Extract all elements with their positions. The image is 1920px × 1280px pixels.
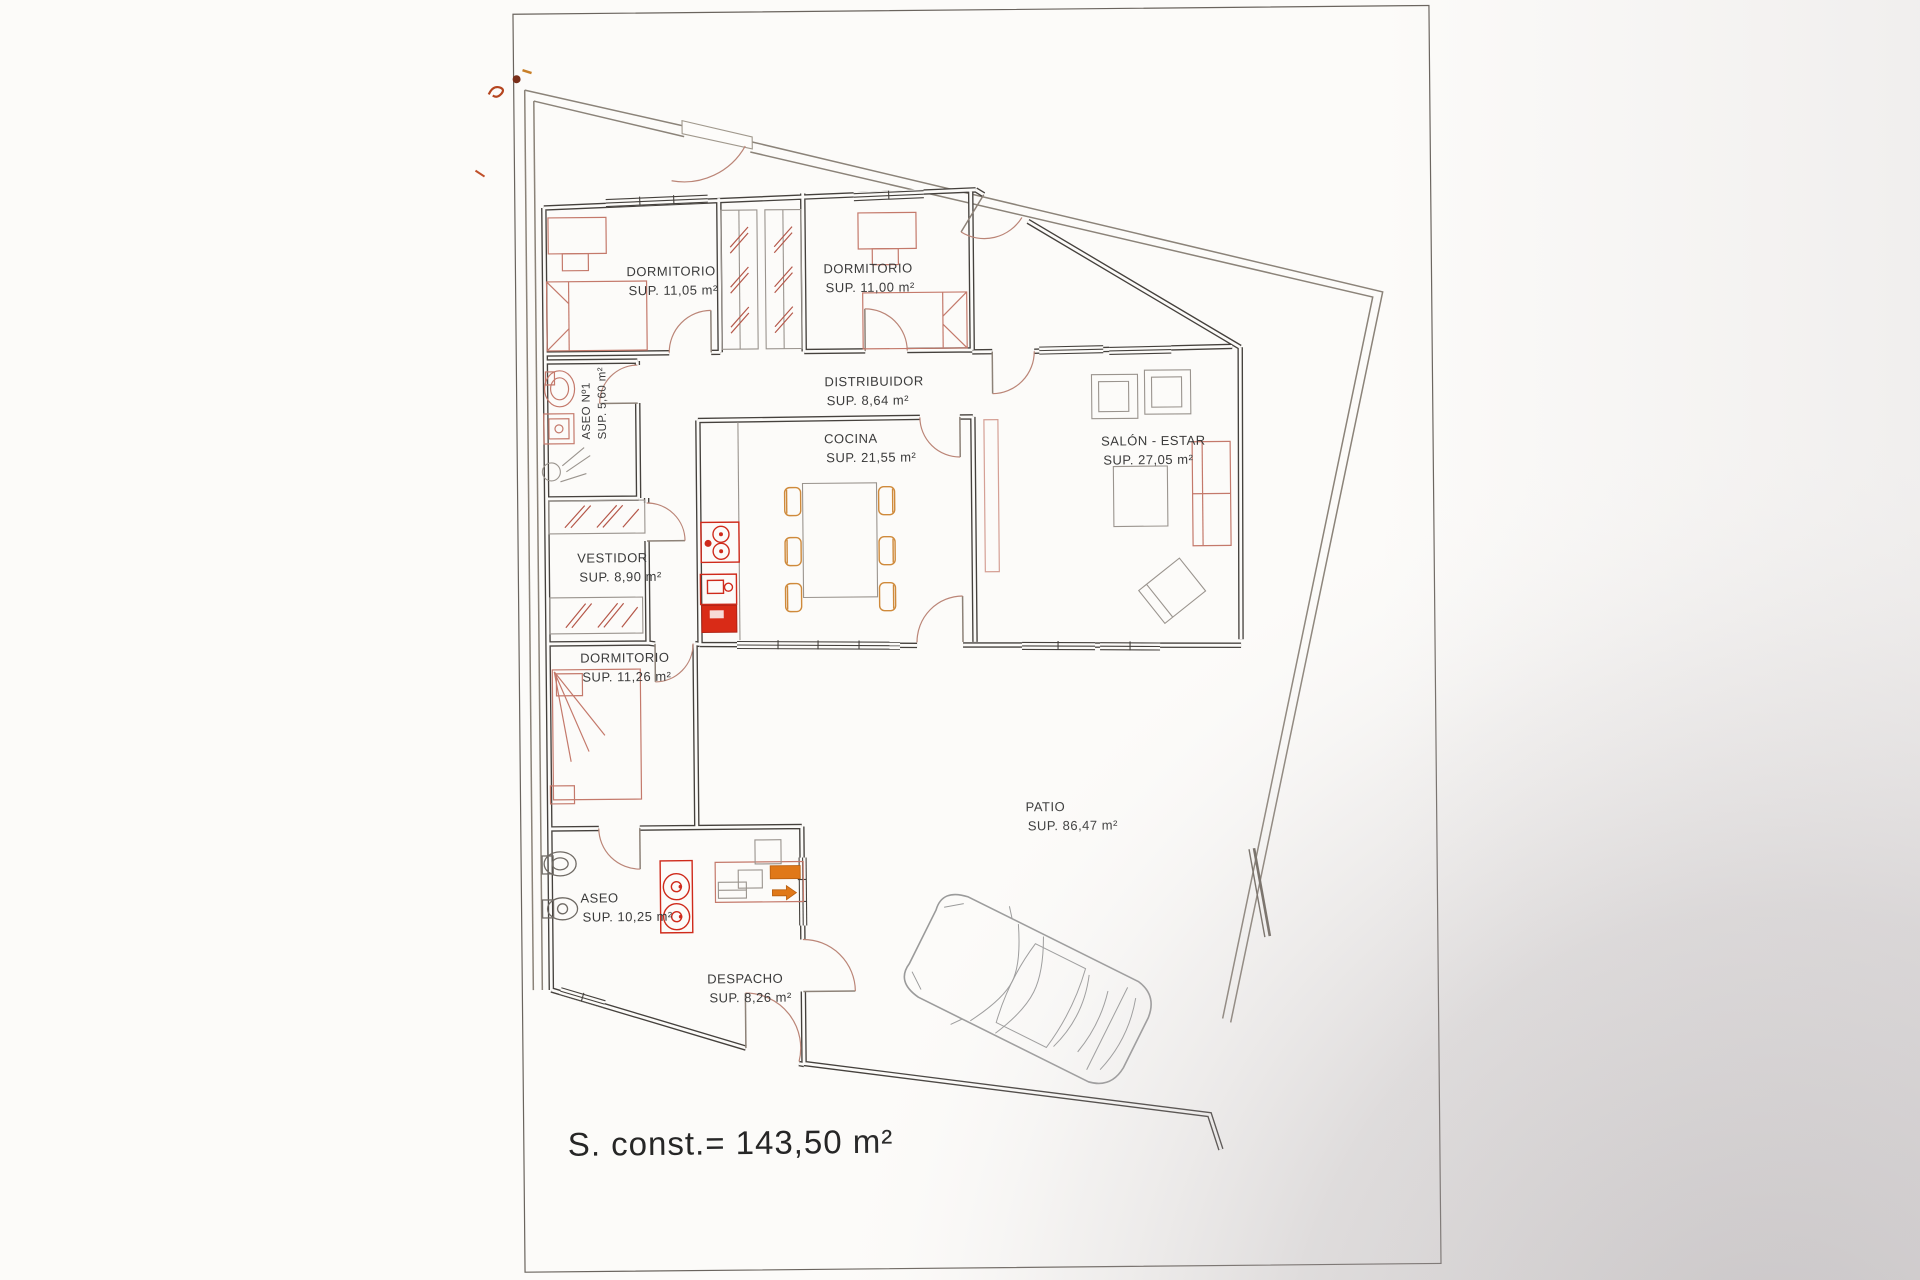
bed-icon [549, 669, 641, 804]
window [1039, 344, 1103, 354]
sink-icon [544, 371, 574, 407]
room-area: SUP. 10,25 m² [583, 909, 673, 925]
window [854, 189, 924, 201]
room-name: DORMITORIO [823, 260, 912, 276]
floor-plan-svg: DORMITORIO SUP. 11,05 m² DORMITORIO SUP.… [0, 0, 1920, 1280]
room-name: ASEO [580, 890, 618, 905]
room-area: SUP. 11,00 m² [826, 279, 915, 295]
room-name: VESTIDOR [577, 550, 648, 566]
room-area: SUP. 5,60 m² [596, 367, 609, 439]
bed-icon [863, 292, 968, 349]
room-area: SUP. 11,05 m² [629, 282, 718, 298]
room-label-aseo-2: ASEO SUP. 10,25 m² [580, 890, 673, 925]
desk-icon [858, 212, 916, 265]
kitchen-sink-icon [700, 574, 737, 632]
wardrobe-icon [721, 210, 802, 350]
room-label-aseo-1: ASEO Nº1 SUP. 5,60 m² [580, 367, 609, 440]
wardrobe-icon [549, 500, 646, 634]
room-name: DORMITORIO [626, 263, 715, 279]
room-area: SUP. 8,90 m² [579, 569, 662, 585]
room-name: DORMITORIO [580, 650, 669, 666]
stove-icon [701, 522, 739, 562]
dresser-icon [548, 217, 607, 271]
room-label-dormitorio-3: DORMITORIO SUP. 11,26 m² [580, 650, 672, 685]
scan-edge-shadow [1380, 0, 1920, 1280]
toilet-icon [542, 852, 576, 876]
room-name: ASEO Nº1 [581, 382, 594, 439]
room-area: SUP. 11,26 m² [582, 669, 671, 685]
window [1109, 345, 1171, 355]
scanned-floor-plan-page: DORMITORIO SUP. 11,05 m² DORMITORIO SUP.… [0, 0, 1920, 1280]
shower-icon [542, 448, 590, 482]
scan-mark [475, 70, 533, 177]
room-label-dormitorio-2: DORMITORIO SUP. 11,00 m² [823, 260, 915, 295]
